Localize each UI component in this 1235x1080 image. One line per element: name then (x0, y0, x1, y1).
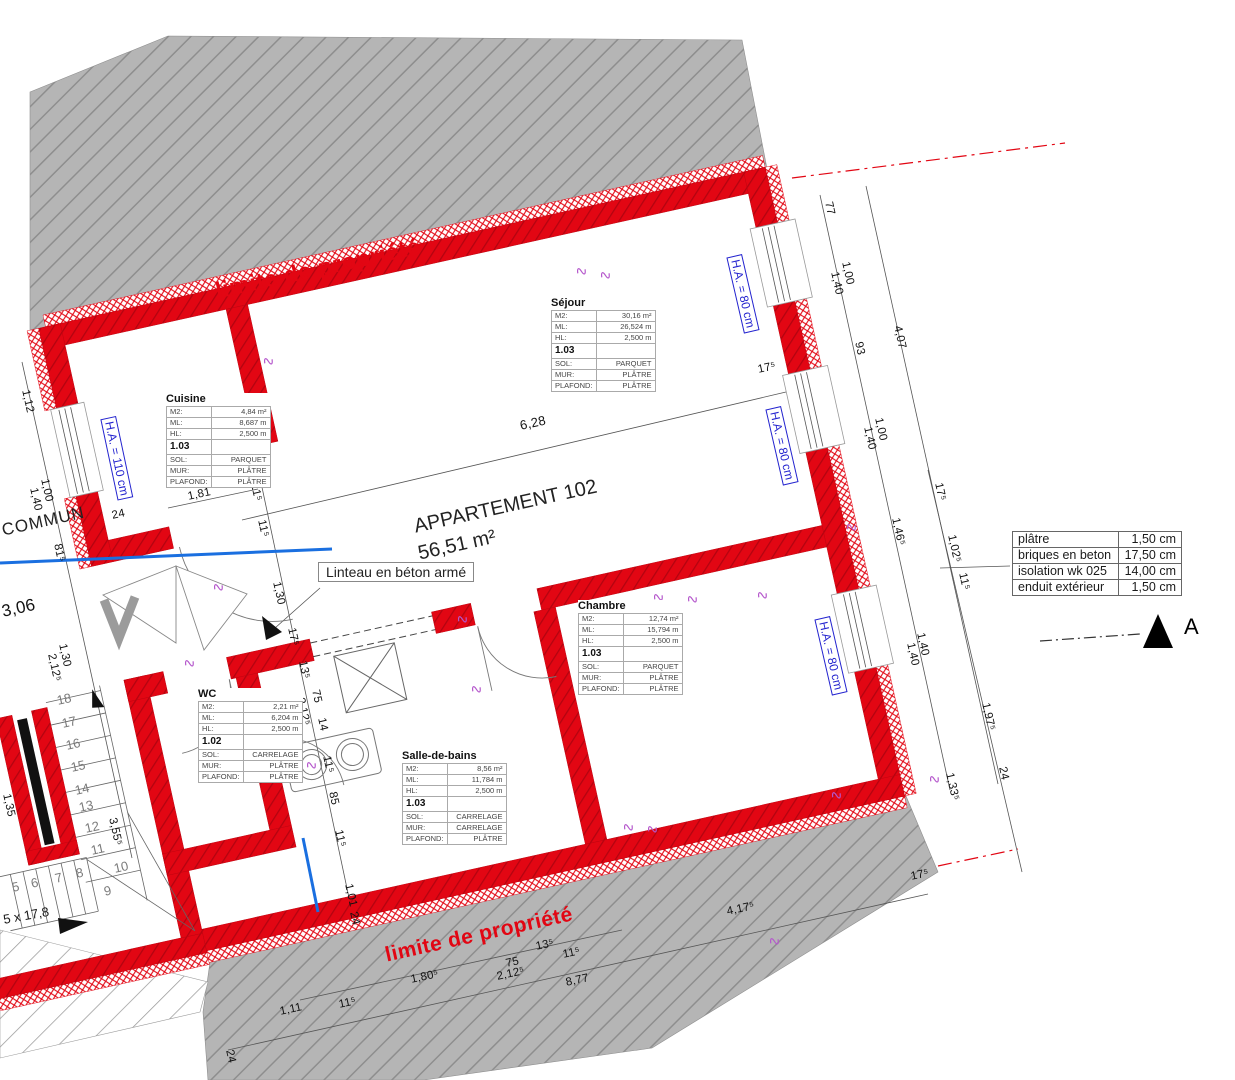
property-line-label-bottom: limite de propriété (383, 903, 575, 968)
electrical-symbol: ∿ (753, 584, 771, 605)
room-row: M2:4,84 m² (167, 407, 271, 418)
electrical-symbol: ∿ (259, 350, 277, 371)
room-table-chambre: ChambreM2:12,74 m²ML:15,794 mHL:2,500 m1… (578, 600, 683, 695)
electrical-symbol: ∿ (619, 816, 637, 837)
stair-step-number: 8 (74, 865, 84, 881)
dimension-label: 1,12 (19, 389, 36, 414)
room-finish-row: SOL:PARQUET (579, 662, 683, 673)
legend-row: briques en beton 17,50 cm (1013, 548, 1182, 564)
legend-material: plâtre (1013, 532, 1119, 548)
room-row: ML:8,687 m (167, 418, 271, 429)
dimension-label: 1,33⁵ (943, 772, 961, 802)
room-finish-row: PLAFOND:PLÂTRE (403, 834, 507, 845)
dimension-label: 8,77 (565, 972, 590, 989)
room-finish-row: PLAFOND:PLÂTRE (552, 381, 656, 392)
room-row: ML:6,204 m (199, 713, 303, 724)
stair-step-number: 7 (53, 870, 63, 886)
dimension-label: 4,17⁵ (726, 900, 756, 918)
electrical-symbol: ∿ (765, 930, 783, 951)
dimension-label: 1,30 (270, 581, 287, 606)
legend-row: plâtre 1,50 cm (1013, 532, 1182, 548)
room-finish-row: SOL:CARRELAGE (403, 812, 507, 823)
apartment-title: APPARTEMENT 102 (412, 476, 599, 539)
window-height-label: H.A. = 110 cm (100, 416, 133, 501)
dimension-label: 1,35 (0, 793, 17, 818)
property-line-label-top: limite de propriété (213, 233, 423, 305)
electrical-symbol: ∿ (572, 260, 590, 281)
room-code-row: 1.03 (403, 797, 507, 812)
room-finish-row: PLAFOND:PLÂTRE (579, 684, 683, 695)
stair-step-number: 13 (77, 797, 94, 815)
room-row: ML:15,794 m (579, 625, 683, 636)
legend-thickness: 14,00 cm (1119, 564, 1182, 580)
room-row: M2:2,21 m² (199, 702, 303, 713)
room-finish-row: MUR:PLÂTRE (579, 673, 683, 684)
legend-thickness: 1,50 cm (1119, 532, 1182, 548)
room-row: HL:2,500 m (403, 786, 507, 797)
room-code-row: 1.02 (199, 735, 303, 750)
dimension-label: 75 (309, 689, 324, 705)
dimension-label: 24 (347, 911, 362, 927)
dimension-label: 3,55⁵ (106, 817, 124, 847)
room-row: M2:30,16 m² (552, 311, 656, 322)
room-row: ML:26,524 m (552, 322, 656, 333)
electrical-symbol: ∿ (596, 264, 614, 285)
stair-riser-note: 5 x 17,8 (2, 904, 50, 927)
room-table-s-jour: SéjourM2:30,16 m²ML:26,524 mHL:2,500 m1.… (551, 297, 656, 392)
stair-step-number: 17 (60, 713, 77, 731)
room-finish-row: PLAFOND:PLÂTRE (167, 477, 271, 488)
room-table-cuisine: CuisineM2:4,84 m²ML:8,687 mHL:2,500 m1.0… (166, 393, 271, 488)
stair-step-number: 9 (102, 883, 112, 899)
room-row: HL:2,500 m (552, 333, 656, 344)
stair-step-number: 16 (64, 735, 81, 753)
legend-material: briques en beton (1013, 548, 1119, 564)
room-name: Chambre (578, 600, 683, 612)
stair-step-number: 10 (112, 858, 129, 876)
electrical-symbol: ∿ (209, 576, 227, 597)
dimension-label: 11⁵ (332, 829, 348, 849)
dimension-label: 2,12⁵ (496, 965, 526, 983)
dimension-label: 1,80⁵ (410, 968, 440, 986)
dimension-label: 24 (223, 1049, 238, 1065)
room-finish-row: SOL:PARQUET (167, 455, 271, 466)
window-height-label: H.A. = 80 cm (726, 254, 759, 333)
stair-step-number: 18 (55, 690, 72, 708)
window-height-label: H.A. = 80 cm (765, 406, 798, 485)
dimension-label: 1,01 (342, 883, 359, 908)
dimension-label: 11⁵ (562, 945, 581, 960)
electrical-symbol: ∿ (302, 754, 320, 775)
room-name: Séjour (551, 297, 656, 309)
legend-row: enduit extérieur 1,50 cm (1013, 580, 1182, 596)
room-table-wc: WCM2:2,21 m²ML:6,204 mHL:2,500 m1.02SOL:… (198, 688, 303, 783)
room-finish-row: MUR:PLÂTRE (167, 466, 271, 477)
dimension-label: 11⁵ (956, 572, 972, 592)
room-name: Cuisine (166, 393, 271, 405)
dimension-label: 24 (111, 507, 126, 522)
room-finish-row: MUR:CARRELAGE (403, 823, 507, 834)
dimension-label: 6,28 (518, 413, 547, 433)
dimension-label: 1,81 (187, 486, 212, 503)
legend-thickness: 1,50 cm (1119, 580, 1182, 596)
dimension-label: 77 (822, 201, 837, 217)
dimension-label: 1,97⁵ (979, 702, 997, 732)
dimension-label: 11⁵ (338, 995, 357, 1010)
stair-step-number: 14 (73, 780, 90, 798)
legend-thickness: 17,50 cm (1119, 548, 1182, 564)
dimension-label: 17⁵ (757, 360, 777, 376)
room-table-salle-de-bains: Salle-de-bainsM2:8,56 m²ML:11,784 mHL:2,… (402, 750, 507, 845)
room-row: M2:8,56 m² (403, 764, 507, 775)
dimension-label: 93 (852, 341, 867, 357)
room-row: HL:2,500 m (167, 429, 271, 440)
dimension-label: 24 (996, 766, 1011, 782)
electrical-symbol: ∿ (643, 818, 661, 839)
room-code-row: 1.03 (552, 344, 656, 359)
stair-step-number: 15 (69, 757, 86, 775)
legend-material: isolation wk 025 (1013, 564, 1119, 580)
dimension-label: 17⁵ (285, 627, 301, 647)
dimension-label: 14 (315, 717, 330, 733)
section-marker-label: A (1184, 614, 1199, 640)
dimension-label: 85 (326, 791, 341, 807)
window-height-label: H.A. = 80 cm (814, 616, 847, 695)
electrical-symbol: ∿ (453, 608, 471, 629)
wall-composition-legend: plâtre 1,50 cm briques en beton 17,50 cm… (1012, 531, 1182, 596)
room-name: WC (198, 688, 303, 700)
floorplan-canvas: limite de propriété limite de propriété … (0, 0, 1235, 1080)
dimension-label: 3,06 (0, 595, 37, 622)
stair-step-number: 6 (29, 875, 39, 891)
electrical-symbol: ∿ (180, 652, 198, 673)
dimension-label: 11⁵ (255, 519, 271, 539)
room-finish-row: SOL:PARQUET (552, 359, 656, 370)
dimension-label: 17⁵ (932, 482, 948, 502)
room-row: HL:2,500 m (579, 636, 683, 647)
electrical-symbol: ∿ (925, 768, 943, 789)
dimension-label: 4,07 (891, 325, 908, 350)
room-finish-row: MUR:PLÂTRE (199, 761, 303, 772)
room-finish-row: PLAFOND:PLÂTRE (199, 772, 303, 783)
room-code-row: 1.03 (167, 440, 271, 455)
dimension-label: 1,11 (279, 1001, 303, 1018)
legend-row: isolation wk 025 14,00 cm (1013, 564, 1182, 580)
electrical-symbol: ∿ (842, 516, 860, 537)
electrical-symbol: ∿ (827, 784, 845, 805)
dimension-label: 13⁵ (296, 660, 312, 680)
lintel-note: Linteau en béton armé (318, 562, 474, 582)
room-row: HL:2,500 m (199, 724, 303, 735)
dimension-label: 11⁵ (320, 755, 336, 775)
room-row: M2:12,74 m² (579, 614, 683, 625)
dimension-label: 1,02⁵ (945, 534, 963, 564)
stair-step-number: 11 (89, 840, 105, 858)
electrical-symbol: ∿ (467, 678, 485, 699)
stair-step-number: 12 (83, 818, 100, 836)
legend-material: enduit extérieur (1013, 580, 1119, 596)
stair-step-number: 5 (10, 879, 20, 895)
room-code-row: 1.03 (579, 647, 683, 662)
annotation-overlay: limite de propriété limite de propriété … (0, 0, 1235, 1080)
room-row: ML:11,784 m (403, 775, 507, 786)
room-name: Salle-de-bains (402, 750, 507, 762)
dimension-label: 1,46⁵ (889, 517, 907, 547)
room-finish-row: SOL:CARRELAGE (199, 750, 303, 761)
electrical-symbol: ∿ (683, 588, 701, 609)
dimension-label: 17⁵ (910, 867, 930, 883)
dimension-label: 13⁵ (535, 937, 555, 953)
dimension-label: 81⁵ (51, 543, 67, 563)
room-finish-row: MUR:PLÂTRE (552, 370, 656, 381)
